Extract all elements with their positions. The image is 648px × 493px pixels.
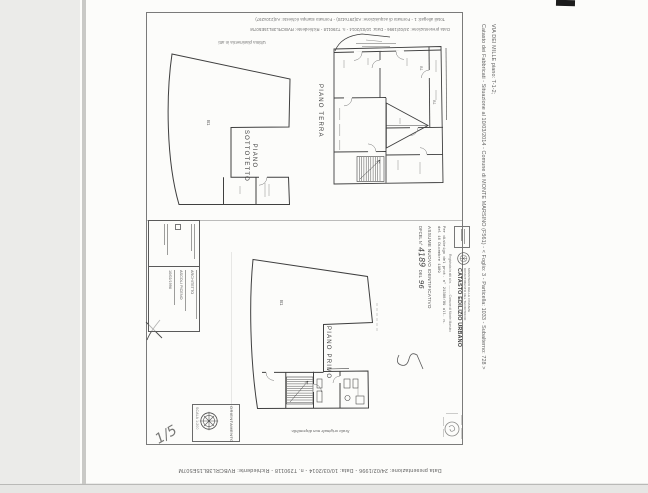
protocol-line1: Per disbrigo del prot. n° 21380/89 all. … <box>440 226 445 366</box>
plan-sottotetto-outline <box>168 54 290 205</box>
technician-province: ASCOLI PICENO <box>177 270 183 328</box>
plan-label-sottotetto-line2: SOTTOTETTO <box>242 126 250 186</box>
plan-label-primo: PIANO PRIMO <box>324 326 332 379</box>
assume-stamp: ASSUME NUOVO IDENTIFICATIVO DFCEL N° 418… <box>417 226 432 366</box>
ministry-line2: DIPARTIMENTO DEL TERRITORIO <box>462 268 466 347</box>
circular-stamp <box>444 414 462 440</box>
illegible-line <box>194 224 195 259</box>
declarant-stamp-box: ARCHITETTO ASCOLI PICENO 10/02/1996 <box>148 220 200 332</box>
catasto-title: CATASTO EDILIZIO URBANO <box>456 268 463 347</box>
illegible-line <box>461 229 462 241</box>
scale-note: Scala originale non disponibile. <box>278 429 362 434</box>
assume-prefix: DFCEL N° <box>418 226 423 245</box>
plan-label-terra: PIANO TERRA <box>316 84 324 138</box>
assume-title: ASSUME NUOVO IDENTIFICATIVO <box>426 226 432 366</box>
handwritten-number: 4189 <box>416 247 426 268</box>
declarant-stamp-office-section <box>149 221 199 267</box>
room-code: B1 <box>206 120 211 126</box>
registered-line: Registrata in atti al n. .......... Comu… <box>448 254 452 366</box>
illegible-line <box>174 270 175 305</box>
illegible-line <box>196 270 197 319</box>
handwritten-year: 96 <box>417 280 425 289</box>
technician-role: ARCHITETTO <box>188 270 194 328</box>
protocol-note: Per disbrigo del prot. n° 21380/89 all. … <box>435 226 445 366</box>
ministry-emblem-icon <box>457 252 470 265</box>
room-code: B1 <box>419 66 424 71</box>
floor-plans-drawing <box>0 0 648 492</box>
plan-primo-outline <box>251 260 377 409</box>
checkbox-mark <box>175 224 181 230</box>
illegible-line <box>191 224 192 251</box>
declarant-stamp-technician-section: ARCHITETTO ASCOLI PICENO 10/02/1996 <box>149 267 199 331</box>
plan-terra-outline <box>334 34 447 184</box>
illegible-line <box>164 224 165 245</box>
room-code: B1 <box>432 100 437 105</box>
catasto-stamp-group: MINISTERO DELLE FINANZE DIPARTIMENTO DEL… <box>394 226 470 366</box>
orientation-label: ORIENTAMENTO <box>229 406 234 443</box>
room-code: B1 <box>279 300 284 306</box>
illegible-line <box>465 229 466 244</box>
staircase-terra <box>357 157 384 182</box>
illegible-line <box>167 224 168 255</box>
scale-label: SCALA 1:200 <box>195 407 199 430</box>
scanned-cadastral-document: { "colors": {"ink": "#3f3f3f", "faint_in… <box>0 0 648 492</box>
assume-del: DEL <box>418 270 423 278</box>
stamp-date: 10/02/1996 <box>167 270 173 328</box>
plan-label-sottotetto: PIANO SOTTOTETTO <box>242 126 257 186</box>
illegible-line <box>185 270 186 311</box>
staircase-primo <box>287 377 314 404</box>
compass-icon <box>197 409 221 433</box>
date-stamp-box <box>454 226 470 248</box>
catasto-stamp: MINISTERO DELLE FINANZE DIPARTIMENTO DEL… <box>454 226 470 366</box>
plan-label-sottotetto-line1: PIANO <box>250 126 258 186</box>
